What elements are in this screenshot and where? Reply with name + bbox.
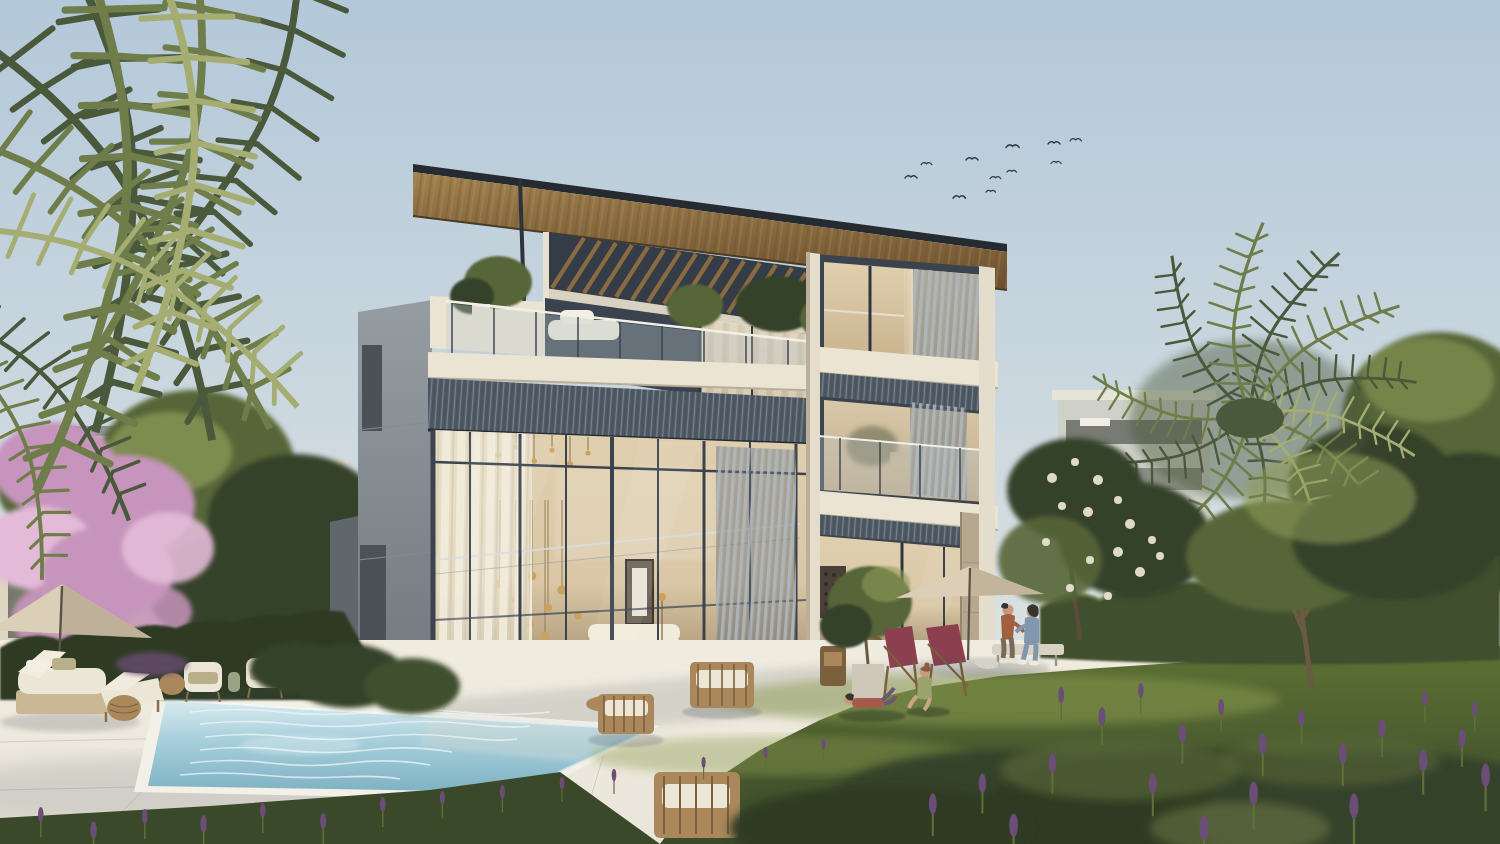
neighbor-building-left [0, 426, 348, 702]
villa-fascia-top [428, 352, 993, 444]
daybed [0, 650, 140, 732]
children-on-lawn [838, 662, 950, 722]
scene-canvas [0, 0, 1500, 844]
villa-base-shrubs [250, 642, 460, 714]
wood-armchair-2 [682, 662, 762, 719]
villa-recess [806, 334, 815, 664]
patio-furniture [588, 566, 1064, 838]
neighbor-building-right [1052, 368, 1500, 620]
hedge-left [0, 611, 370, 700]
umbrella-left [0, 584, 152, 694]
hedge-right [1040, 556, 1500, 665]
villa-right-volume [806, 252, 998, 664]
dog [977, 659, 999, 669]
villa [330, 164, 1007, 720]
lounge-chair-maroon-2 [926, 624, 968, 700]
flowering-tree [998, 438, 1211, 640]
pool-reflection [420, 714, 640, 762]
wicker-basket [107, 695, 141, 721]
tree-cluster-right [1288, 332, 1500, 625]
wood-armchair-foreground [654, 772, 740, 838]
woman-figure [1016, 604, 1039, 665]
villa-side-wall [330, 300, 432, 720]
dining-chair-wood [820, 646, 846, 686]
lawn [0, 646, 1500, 844]
sun-lounger [100, 672, 164, 722]
man-figure [999, 603, 1024, 664]
villa-shadow [350, 664, 1040, 752]
wood-armchair-mid [588, 694, 664, 747]
palm-fronds-overhang [0, 0, 399, 583]
villa-terrace [446, 256, 886, 402]
umbrella-right [896, 566, 1050, 678]
potted-olive-tree [820, 566, 912, 698]
pool-armchairs [116, 652, 294, 702]
child-lying [844, 688, 896, 708]
lavender-spikes [38, 683, 1490, 844]
tree-cluster-left [0, 390, 400, 660]
pool-side-table [586, 695, 638, 713]
pool-deck [0, 640, 1500, 844]
child-sitting [909, 662, 932, 710]
sky [0, 0, 1500, 844]
bench-with-couple [975, 603, 1064, 669]
olive-tree [1186, 452, 1500, 690]
lavender-garden [38, 683, 1500, 844]
villa-pergola [543, 232, 806, 336]
pool [134, 694, 660, 800]
lounge-chair-maroon-1 [884, 626, 920, 700]
villa-glass-wall [432, 430, 806, 706]
birds-flock [905, 139, 1081, 199]
blossom-tree [0, 422, 214, 692]
villa-penthouse [430, 296, 806, 412]
poolside-furniture [0, 584, 638, 732]
villa-roof [413, 164, 1007, 302]
palm-tree-right [1085, 219, 1419, 594]
architectural-rendering [0, 0, 1500, 844]
